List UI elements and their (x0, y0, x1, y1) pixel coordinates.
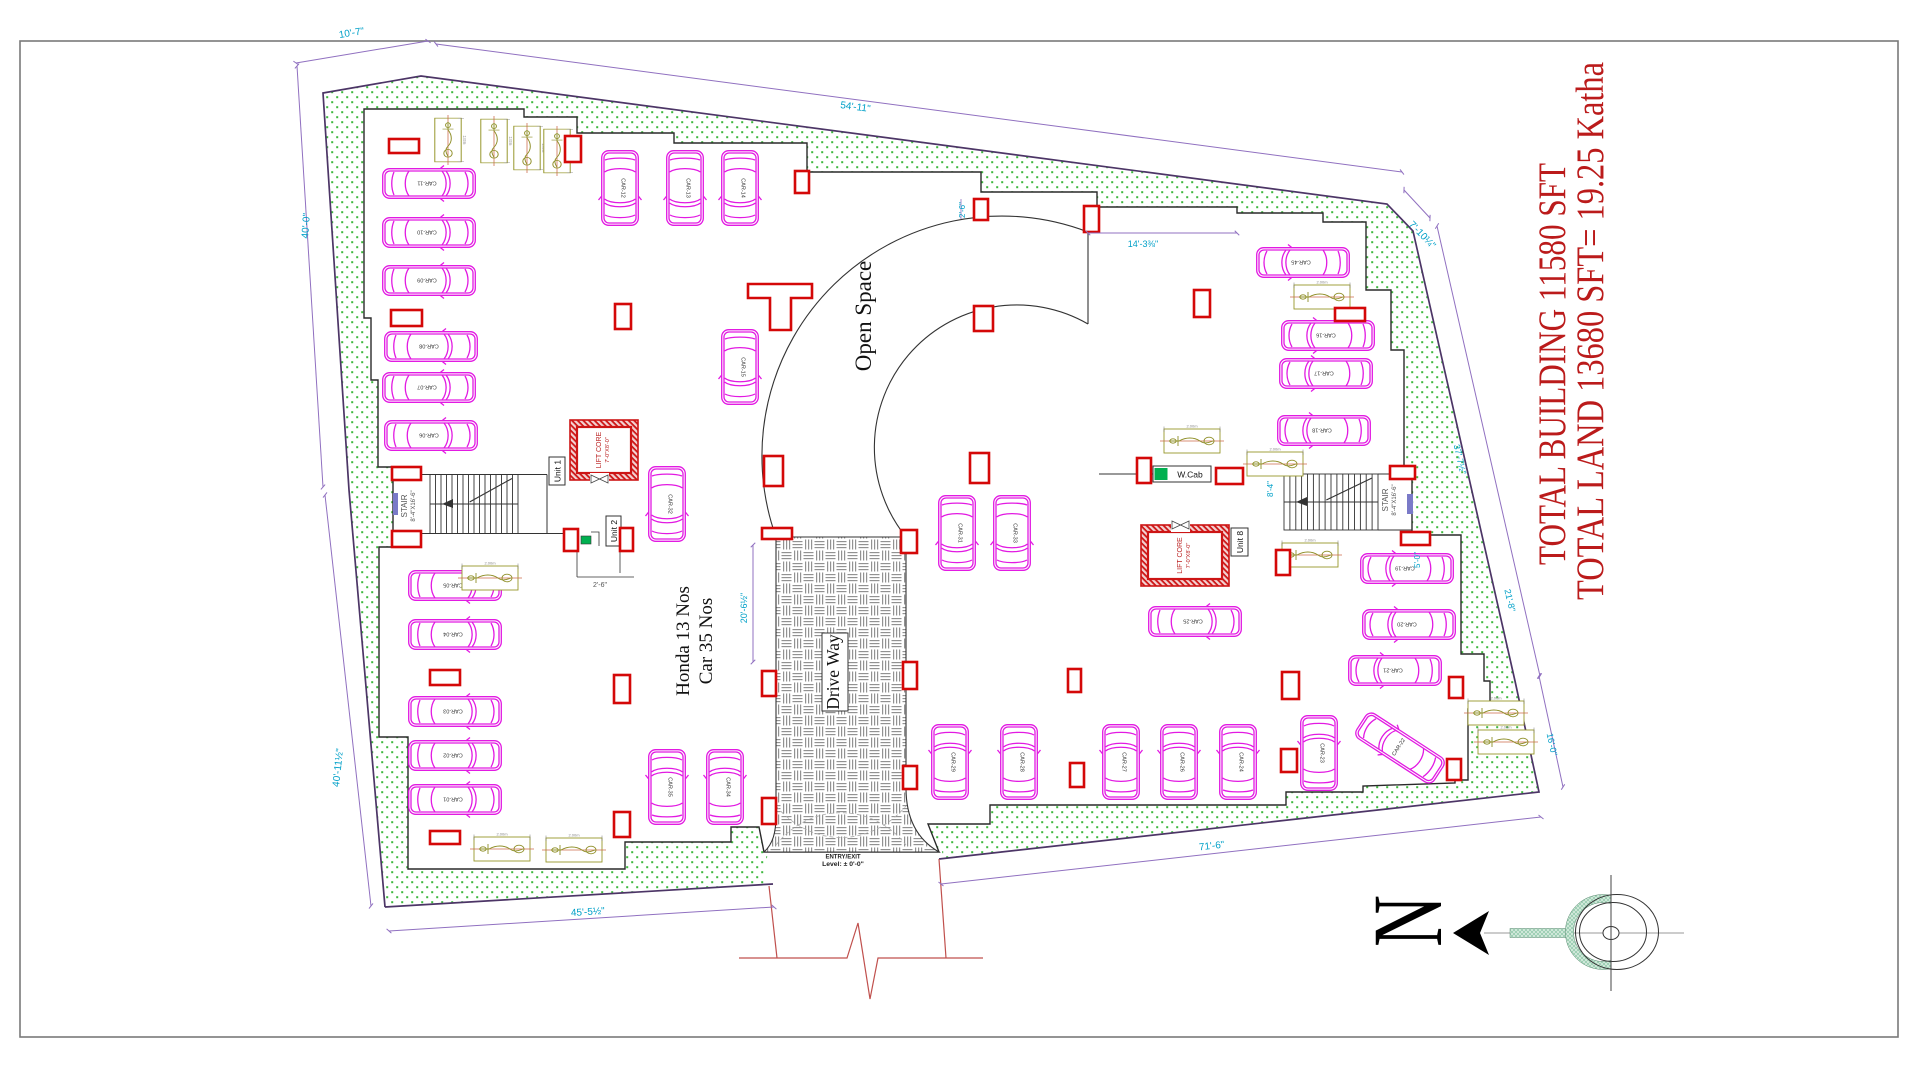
svg-text:7'-0"X8'-0": 7'-0"X8'-0" (605, 437, 611, 463)
svg-text:CAR-11: CAR-11 (417, 180, 436, 186)
svg-text:8'-4"X16'-6": 8'-4"X16'-6" (411, 490, 417, 521)
svg-text:CAR-01: CAR-01 (443, 796, 463, 802)
svg-text:CAR-25: CAR-25 (1183, 618, 1203, 624)
svg-text:CAR-24: CAR-24 (1238, 752, 1244, 772)
svg-text:Open Space: Open Space (851, 261, 876, 372)
svg-text:CAR-15: CAR-15 (740, 357, 746, 377)
svg-text:CAR-19: CAR-19 (1395, 565, 1415, 571)
svg-text:CAR-33: CAR-33 (1012, 523, 1018, 543)
svg-text:CAR-08: CAR-08 (419, 343, 439, 349)
svg-text:ENTRY/EXIT: ENTRY/EXIT (825, 855, 860, 861)
svg-text:40'-0": 40'-0" (300, 212, 313, 239)
svg-text:CAR-13: CAR-13 (685, 178, 691, 198)
svg-text:Drive Way: Drive Way (823, 634, 843, 710)
svg-text:8'-4"X16'-6": 8'-4"X16'-6" (1392, 484, 1398, 515)
svg-text:Unit 2: Unit 2 (609, 520, 619, 542)
svg-text:Level: ± 0'-0": Level: ± 0'-0" (822, 861, 864, 868)
svg-text:CAR-34: CAR-34 (725, 777, 731, 797)
svg-text:N: N (1352, 895, 1463, 947)
svg-text:45'-5½": 45'-5½" (571, 906, 606, 919)
svg-text:2'-6": 2'-6" (593, 582, 607, 589)
svg-text:CAR-18: CAR-18 (1312, 427, 1332, 433)
svg-text:TOTAL BUILDING 11580 SFT: TOTAL BUILDING 11580 SFT (1531, 163, 1574, 565)
svg-text:8'-4": 8'-4" (1266, 481, 1275, 497)
svg-text:CAR-23: CAR-23 (1319, 743, 1325, 763)
svg-text:CAR-16: CAR-16 (1316, 332, 1336, 338)
svg-text:CAR-05: CAR-05 (443, 582, 463, 588)
svg-text:CAR-17: CAR-17 (1314, 370, 1334, 376)
svg-text:CAR-26: CAR-26 (1179, 752, 1185, 772)
svg-text:CAR-10: CAR-10 (417, 229, 437, 235)
svg-text:CAR-12: CAR-12 (620, 178, 626, 198)
svg-text:CAR-04: CAR-04 (443, 631, 463, 637)
svg-text:CAR-28: CAR-28 (1019, 752, 1025, 772)
svg-text:CAR-02: CAR-02 (443, 752, 463, 758)
svg-text:LIFT CORE: LIFT CORE (596, 431, 603, 468)
svg-text:CAR-31: CAR-31 (957, 523, 963, 543)
svg-text:CAR-35: CAR-35 (667, 777, 673, 797)
svg-text:LIFT CORE: LIFT CORE (1177, 537, 1184, 574)
svg-text:CAR-03: CAR-03 (443, 708, 463, 714)
svg-text:W.Cab: W.Cab (1177, 470, 1203, 480)
svg-text:CAR-14: CAR-14 (740, 178, 746, 198)
svg-text:Honda 13 Nos: Honda 13 Nos (673, 586, 694, 696)
svg-text:CAR-06: CAR-06 (419, 432, 439, 438)
svg-text:CAR-45: CAR-45 (1291, 259, 1311, 265)
svg-text:20'-6½": 20'-6½" (739, 593, 749, 623)
svg-text:Unit 8: Unit 8 (1235, 531, 1245, 553)
svg-text:7'-0"X8'-0": 7'-0"X8'-0" (1186, 543, 1192, 569)
svg-text:STAIR: STAIR (400, 494, 409, 517)
svg-text:Unit 1: Unit 1 (553, 460, 563, 482)
svg-text:CAR-20: CAR-20 (1397, 621, 1417, 627)
svg-text:14'-3⅜": 14'-3⅜" (1128, 239, 1158, 249)
svg-text:CAR-32: CAR-32 (667, 494, 673, 514)
svg-text:STAIR: STAIR (1381, 488, 1390, 511)
svg-text:CAR-09: CAR-09 (417, 277, 437, 283)
svg-text:CAR-07: CAR-07 (417, 384, 437, 390)
svg-text:2'-6": 2'-6" (958, 202, 967, 218)
svg-text:TOTAL LAND 13680 SFT= 19.25 Ka: TOTAL LAND 13680 SFT= 19.25 Katha (1569, 62, 1612, 600)
svg-text:5'-0": 5'-0" (1413, 552, 1422, 568)
svg-text:CAR-27: CAR-27 (1121, 752, 1127, 772)
svg-text:Car 35 Nos: Car 35 Nos (696, 598, 717, 685)
svg-text:CAR-21: CAR-21 (1383, 667, 1403, 673)
svg-text:CAR-29: CAR-29 (950, 752, 956, 772)
